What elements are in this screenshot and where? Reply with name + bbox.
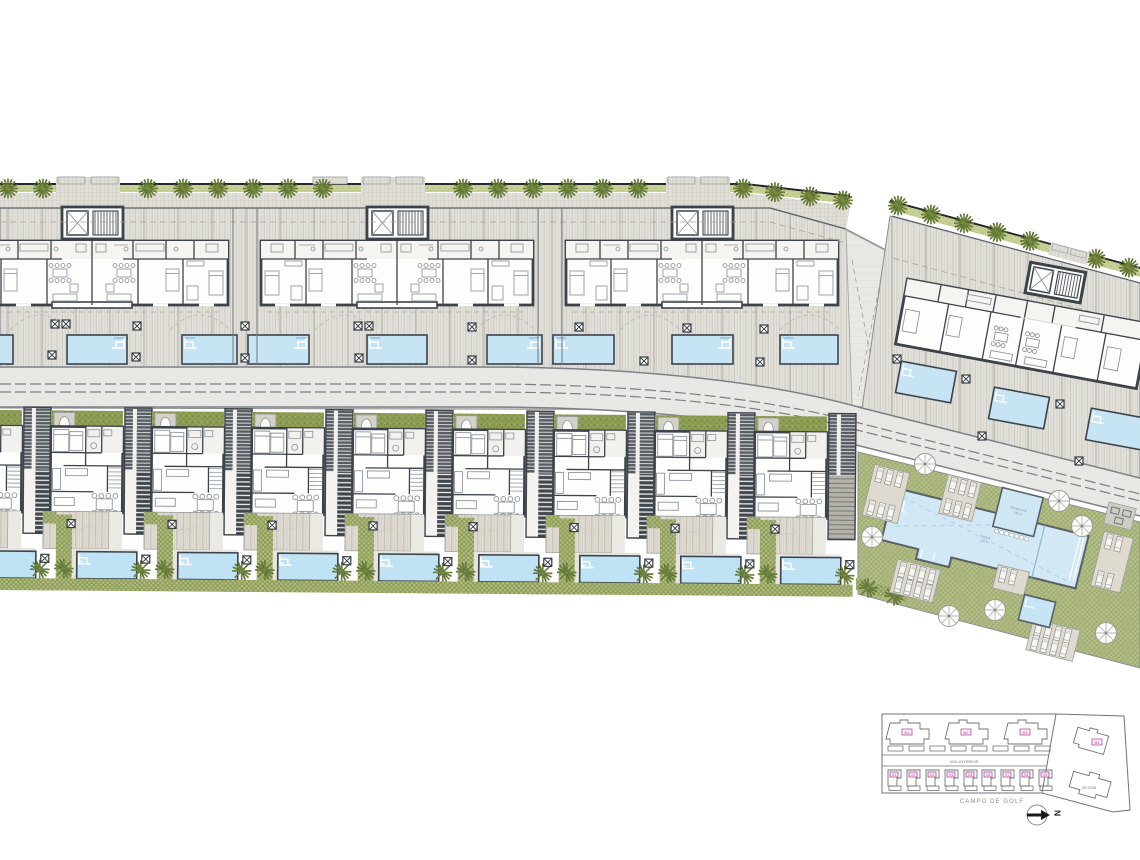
svg-text:V8: V8 xyxy=(1024,773,1028,777)
svg-text:B1: B1 xyxy=(905,730,911,735)
svg-text:B3: B3 xyxy=(1023,730,1029,735)
svg-text:B2: B2 xyxy=(964,730,970,735)
svg-text:V6: V6 xyxy=(986,773,990,777)
svg-text:ZN COM: ZN COM xyxy=(1082,786,1096,790)
svg-text:B4: B4 xyxy=(1095,740,1101,745)
svg-text:V3: V3 xyxy=(930,773,934,777)
svg-text:V5: V5 xyxy=(968,773,972,777)
svg-text:V4: V4 xyxy=(949,773,953,777)
svg-text:V2: V2 xyxy=(911,773,915,777)
svg-text:V1: V1 xyxy=(892,773,896,777)
svg-text:V7: V7 xyxy=(1005,773,1009,777)
svg-text:VIAL INTERIOR: VIAL INTERIOR xyxy=(950,759,979,764)
svg-text:CAMPO DE GOLF: CAMPO DE GOLF xyxy=(960,799,1024,805)
svg-text:V9: V9 xyxy=(1043,773,1047,777)
svg-text:N: N xyxy=(1053,810,1063,816)
